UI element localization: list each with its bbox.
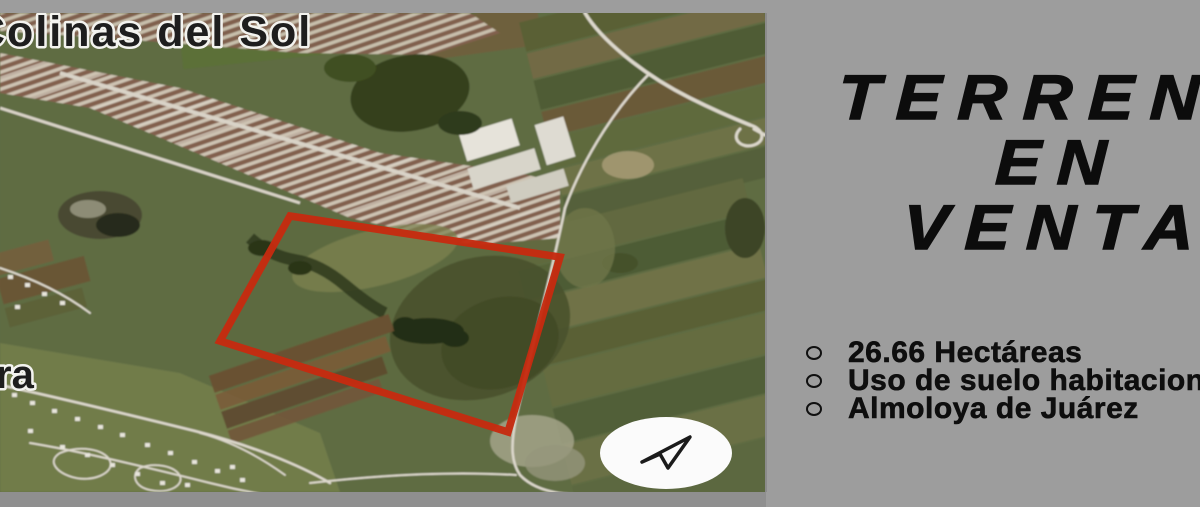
bullet-circle-icon [806, 402, 822, 416]
title-line-2: EN [785, 131, 1200, 196]
list-item-land-use: Uso de suelo habitacional [806, 367, 1200, 395]
list-item-location: Almoloya de Juárez [806, 395, 1200, 423]
quarry [58, 191, 142, 239]
nav-circle-button[interactable] [600, 417, 732, 489]
dark-grove [725, 198, 765, 258]
sale-title: TERRENO EN VENTA [783, 66, 1200, 261]
flyer: Colinas del Sol ra TERRENO EN VENTA 26.6… [0, 0, 1200, 507]
bullet-text-location: Almoloya de Juárez [848, 392, 1139, 426]
detail-list: 26.66 Hectáreas Uso de suelo habitaciona… [806, 339, 1200, 423]
bullet-circle-icon [806, 374, 822, 388]
satellite-map: Colinas del Sol ra [0, 13, 765, 492]
title-line-1: TERRENO [788, 66, 1200, 131]
bullet-circle-icon [806, 346, 822, 360]
list-item-area: 26.66 Hectáreas [806, 339, 1200, 367]
title-line-3: VENTA [783, 196, 1200, 261]
map-label-partial: ra [0, 353, 35, 397]
map-label-neighborhood: Colinas del Sol [0, 13, 312, 56]
sale-panel: TERRENO EN VENTA 26.66 Hectáreas Uso de … [766, 0, 1200, 507]
map-bottom-shadow [0, 492, 766, 507]
sandy-patch [602, 151, 654, 179]
